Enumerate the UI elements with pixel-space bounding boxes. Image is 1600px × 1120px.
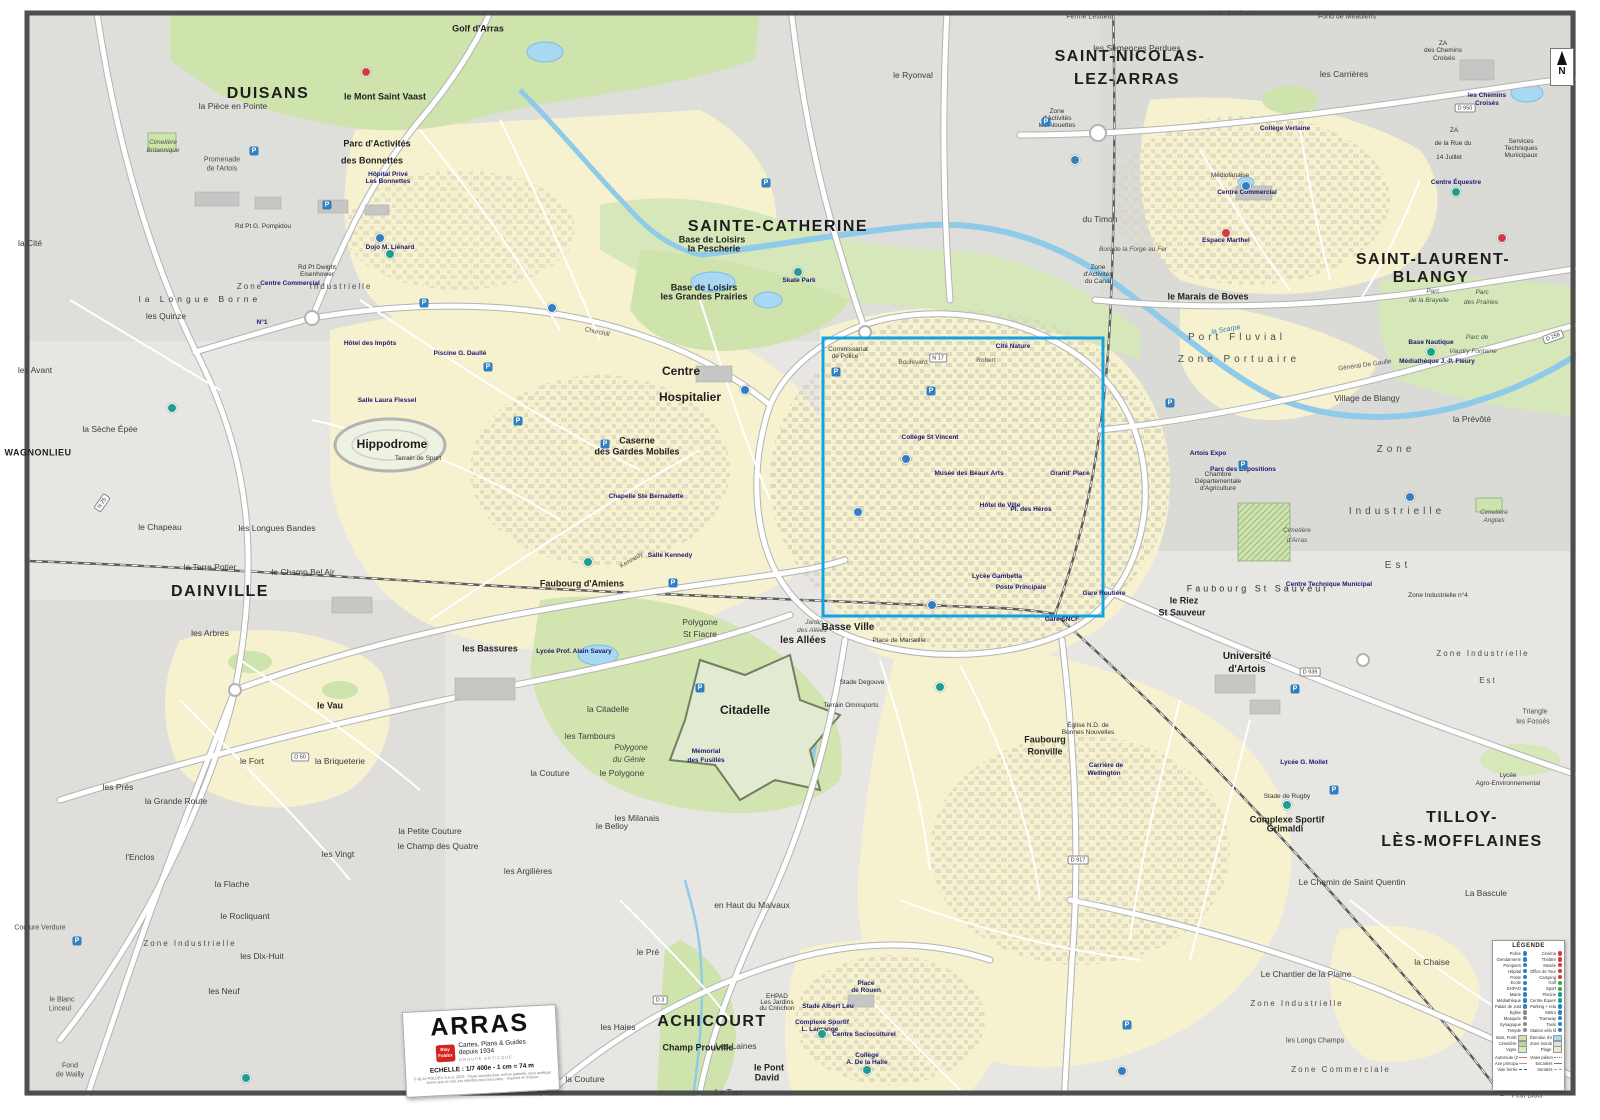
map-label: d'Artois xyxy=(1228,665,1265,675)
legend-line-label: Escaliers xyxy=(1530,1061,1553,1066)
map-label: Est xyxy=(1479,677,1497,685)
legend-item-label: Temple xyxy=(1495,1028,1521,1033)
poi-icon xyxy=(1221,228,1231,238)
legend-item-icon xyxy=(1523,1028,1528,1033)
map-label: les Carrières xyxy=(1320,70,1368,79)
map-label: Anglais xyxy=(1483,518,1504,525)
map-label: Cimetière xyxy=(1480,510,1508,517)
map-label: Faubourg xyxy=(1024,736,1066,745)
legend-area-swatch xyxy=(1518,1046,1527,1053)
poi-icon xyxy=(1117,1066,1127,1076)
map-label: les Milanais xyxy=(615,814,659,823)
map-label: Zone Industrielle xyxy=(1250,1000,1343,1008)
map-label: les Quinze xyxy=(146,312,186,321)
map-label: Croisés xyxy=(1433,56,1455,63)
legend-item-icon xyxy=(1523,998,1528,1003)
map-label: La Tour xyxy=(715,1088,743,1097)
publisher-logo-line2: Foldex xyxy=(436,1053,455,1060)
legend-item-icon xyxy=(1523,1010,1528,1015)
parking-icon: P xyxy=(832,368,841,377)
map-label: Couture Verdure xyxy=(14,925,65,932)
legend-item-label: Police xyxy=(1495,951,1521,956)
legend-item-label: Mosquée xyxy=(1495,1016,1521,1021)
map-label: les Longues Bandes xyxy=(238,524,315,533)
map-label: Lycée Prof. Alain Savary xyxy=(536,649,611,656)
map-label: des Chemins xyxy=(1424,48,1462,55)
legend-area-label: Cimetière xyxy=(1495,1041,1517,1046)
map-label: de Police xyxy=(832,354,859,361)
map-label: Parc xyxy=(1475,290,1488,297)
map-label: Médiolanaise xyxy=(1211,173,1249,180)
poi-icon xyxy=(901,454,911,464)
legend-item-label: Tramway xyxy=(1530,1016,1556,1021)
legend-item-label: Taxis xyxy=(1530,1022,1556,1027)
map-label: Carrière de xyxy=(1089,763,1123,770)
map-label: le Champ Bel Air xyxy=(271,568,334,577)
map-label: Est xyxy=(1385,561,1411,571)
map-label: Ronville xyxy=(1027,748,1062,757)
map-label: Lycée xyxy=(1499,773,1516,780)
map-label: Fond de Meaulens xyxy=(1318,14,1376,21)
map-label: le Pont xyxy=(754,1064,784,1073)
map-label: la Couture xyxy=(530,769,569,778)
map-label: la Petite Couture xyxy=(398,827,461,836)
map-label: Village de Blangy xyxy=(1334,394,1400,403)
legend-item-icon xyxy=(1558,963,1563,968)
map-label: Boulevard xyxy=(898,360,927,367)
legend-item-icon xyxy=(1523,1004,1528,1009)
map-label: Les Laines xyxy=(715,1042,756,1051)
map-label: le Mont Saint Vaast xyxy=(344,93,426,102)
legend-item-label: Pompiers xyxy=(1495,963,1521,968)
map-label: Zone Portuaire xyxy=(1178,355,1300,365)
parking-icon: P xyxy=(669,579,678,588)
legend-item-label: Église xyxy=(1495,1010,1521,1015)
map-label: les Tambours xyxy=(565,732,615,741)
map-label: Zone Industrielle xyxy=(143,940,236,948)
map-label: les Chemins xyxy=(1468,93,1506,100)
map-label: Faubourg d'Amiens xyxy=(540,580,624,589)
map-label: Parc d'Activités xyxy=(343,140,410,149)
map-label: les Dix-Huit xyxy=(240,952,283,961)
map-label: le Vau xyxy=(317,702,343,711)
publisher-logo: Blay Foldex xyxy=(435,1044,455,1062)
road-number-chip: D 60 xyxy=(291,752,309,761)
poi-icon xyxy=(862,1065,872,1075)
poi-icon xyxy=(1426,347,1436,357)
poi-icon xyxy=(1070,155,1080,165)
map-label: d'Agriculture xyxy=(1200,486,1236,493)
legend-item-label: Poste xyxy=(1495,975,1521,980)
north-arrow: N xyxy=(1550,48,1574,86)
map-label: les Fossés xyxy=(1516,719,1549,726)
map-label: des Gardes Mobiles xyxy=(594,448,679,457)
poi-icon xyxy=(817,1029,827,1039)
road-number-chip: N 17 xyxy=(929,353,947,362)
legend-item-label: Cinéma xyxy=(1530,951,1556,956)
poi-icon xyxy=(1451,187,1461,197)
legend-item-label: Office de Tourisme xyxy=(1530,969,1556,974)
map-label: Centre Commercial xyxy=(260,281,320,288)
legend-item-icon xyxy=(1523,1022,1528,1027)
legend-item-icon xyxy=(1523,1016,1528,1021)
poi-icon xyxy=(167,403,177,413)
map-label: Lycée G. Mollet xyxy=(1280,760,1327,767)
map-label: Port Fluvial xyxy=(1188,333,1286,343)
map-label: de la Rue du xyxy=(1435,141,1472,148)
map-label: Britannique xyxy=(147,148,180,155)
north-arrow-glyph xyxy=(1557,51,1567,65)
legend-box: LÉGENDE PoliceGendarmeriePompiersHôpital… xyxy=(1492,940,1565,1091)
parking-icon: P xyxy=(601,440,610,449)
map-label: en Haut du Malvaux xyxy=(714,901,790,910)
map-label: de Rouen xyxy=(851,988,881,995)
map-label: Grand' Place xyxy=(1050,471,1089,478)
map-label: Les Bonnettes xyxy=(366,179,411,186)
map-label: la Sèche Épée xyxy=(82,425,137,434)
title-block: ARRAS Blay Foldex Cartes, Plans & Guides… xyxy=(402,1004,560,1098)
road-number-chip: D 917 xyxy=(1068,855,1089,864)
map-label: DUISANS xyxy=(227,86,310,102)
legend-line-sample xyxy=(1519,1069,1527,1070)
map-label: Stade Degouve xyxy=(840,680,885,687)
poi-icon xyxy=(927,600,937,610)
map-label: l'Enclos xyxy=(125,853,154,862)
poi-icon xyxy=(385,249,395,259)
map-label: les Grandes Prairies xyxy=(660,293,747,302)
map-label: St Fiacre xyxy=(683,630,717,639)
map-label: la Pescherie xyxy=(688,245,741,254)
legend-item-label: Piscine xyxy=(1530,992,1556,997)
map-label: Bois de la Forge au Fer xyxy=(1099,247,1167,254)
map-label: Parc de xyxy=(1466,335,1488,342)
legend-item-label: Synagogue xyxy=(1495,1022,1521,1027)
map-label: d'Arras xyxy=(1287,538,1307,545)
parking-icon: P xyxy=(1239,461,1248,470)
legend-item-label: Parking + relais xyxy=(1530,1004,1556,1009)
map-label: SAINTE-CATHERINE xyxy=(688,219,868,235)
legend-item-icon xyxy=(1558,957,1563,962)
legend-item-label: École xyxy=(1495,980,1521,985)
legend-item-icon xyxy=(1558,1022,1563,1027)
legend-item-label: Centre Équestre xyxy=(1530,998,1556,1003)
map-label: les Arbres xyxy=(191,629,229,638)
map-label: la Citadelle xyxy=(587,705,629,714)
legend-item-icon xyxy=(1558,998,1563,1003)
road-number-chip: D 3 xyxy=(653,995,668,1004)
map-label: SAINT-LAURENT- xyxy=(1356,252,1510,268)
map-label: Polygone xyxy=(682,618,717,627)
map-label: St Sauveur xyxy=(1158,609,1205,618)
map-label: Piscine G. Daullé xyxy=(434,351,487,358)
parking-icon: P xyxy=(1042,118,1051,127)
map-label: les Allées xyxy=(780,636,826,646)
map-label: Pl. des Héros xyxy=(1010,507,1051,514)
map-label: TILLOY- xyxy=(1426,810,1498,826)
map-label: Gare SNCF xyxy=(1045,617,1079,624)
map-label: Ferme Lesueur xyxy=(1066,14,1113,21)
map-label: Zone Industrielle xyxy=(1436,650,1529,658)
map-label: BLANGY xyxy=(1393,270,1470,286)
map-label: Petit Blois xyxy=(1511,1093,1542,1100)
parking-icon: P xyxy=(1291,685,1300,694)
map-label: Terrain Omnisports xyxy=(824,703,879,710)
legend-item-icon xyxy=(1558,1016,1563,1021)
poi-icon xyxy=(583,557,593,567)
legend-item-icon xyxy=(1523,951,1528,956)
map-label: le Chapeau xyxy=(138,523,181,532)
map-label: Artois Expo xyxy=(1190,451,1226,458)
legend-line-label: Voies piétonnes xyxy=(1530,1055,1553,1060)
parking-icon: P xyxy=(250,147,259,156)
map-label: Lycée Gambetta xyxy=(972,574,1022,581)
map-label: Chapelle Ste Bernadette xyxy=(609,494,684,501)
map-label: la Pièce en Pointe xyxy=(199,102,268,111)
map-label: la Terre Potier xyxy=(184,563,237,572)
legend-area-label: Plage xyxy=(1530,1047,1552,1052)
map-label: Municipaux xyxy=(1505,153,1538,160)
map-label: Industrielle xyxy=(1349,507,1445,517)
map-label: de l'Artois xyxy=(207,166,238,173)
legend-item-icon xyxy=(1523,992,1528,997)
map-label: Espace Marthel xyxy=(1202,238,1250,245)
legend-area-label: Vigne xyxy=(1495,1047,1517,1052)
map-label: Salle Kennedy xyxy=(648,553,692,560)
legend-item-icon xyxy=(1523,957,1528,962)
map-label: Hippodrome xyxy=(357,438,428,450)
legend-line-sample xyxy=(1554,1057,1562,1058)
map-label: Linceul xyxy=(49,1006,71,1013)
map-label: ZA xyxy=(1450,128,1458,135)
map-label: Médiathèque J.-P. Fleury xyxy=(1399,359,1475,366)
legend-item-label: Hôpital xyxy=(1495,969,1521,974)
map-sheet: DUISANSSAINTE-CATHERINESAINT-NICOLAS-LEZ… xyxy=(0,0,1600,1120)
map-label: Hôtel des Impôts xyxy=(344,341,396,348)
legend-item-label: Musée xyxy=(1530,963,1556,968)
map-label: du Timon xyxy=(1083,215,1118,224)
map-label: Cimetière xyxy=(149,140,177,147)
legend-area-label: Zone inondable xyxy=(1530,1041,1552,1046)
map-label: Golf d'Arras xyxy=(452,25,504,34)
map-label: Rd Pt G. Pompidou xyxy=(235,224,291,231)
legend-item-icon xyxy=(1558,1004,1563,1009)
map-label: du Canal xyxy=(1085,279,1111,286)
map-label: LÈS-MOFFLAINES xyxy=(1381,834,1542,850)
legend-item-icon xyxy=(1523,987,1528,992)
map-label: DAINVILLE xyxy=(171,584,269,600)
poi-icon xyxy=(241,1073,251,1083)
map-label: Eisenhower xyxy=(300,272,334,279)
parking-icon: P xyxy=(514,417,523,426)
legend-line-label: Autoroute (2x2 voies) xyxy=(1495,1055,1518,1060)
legend-item-icon xyxy=(1558,1028,1563,1033)
legend-item-label: Sport xyxy=(1530,986,1556,991)
poi-icon xyxy=(793,267,803,277)
map-label: David xyxy=(755,1074,780,1083)
map-label: Le Chantier de la Plaine xyxy=(1261,970,1352,979)
map-label: les Avant xyxy=(18,366,52,375)
map-label: les Neuf xyxy=(208,987,239,996)
map-label: Jardin xyxy=(805,620,823,627)
map-label: Université xyxy=(1223,652,1271,662)
legend-line-label: Sentiers xyxy=(1530,1067,1553,1072)
map-label: Centre Technique Municipal xyxy=(1286,582,1372,589)
poi-icon xyxy=(740,385,750,395)
map-label: 14 Juillet xyxy=(1436,155,1462,162)
legend-item-icon xyxy=(1523,981,1528,986)
map-label: du Génie xyxy=(613,756,645,764)
poi-icon xyxy=(361,67,371,77)
map-label: Zone xyxy=(237,283,263,291)
parking-icon: P xyxy=(323,201,332,210)
poi-icon xyxy=(935,682,945,692)
map-label: Fond xyxy=(62,1063,78,1070)
map-label: Vaudry Fontaine xyxy=(1449,349,1496,356)
map-label: Parc xyxy=(1426,289,1439,296)
legend-area-swatch xyxy=(1553,1046,1562,1053)
map-label: Collège St Vincent xyxy=(902,435,959,442)
map-label: le Champ des Quatre xyxy=(398,842,479,851)
parking-icon: P xyxy=(1166,399,1175,408)
legend-item-label: Gendarmerie xyxy=(1495,957,1521,962)
legend-area-label: Bois, Forêt xyxy=(1495,1035,1517,1040)
legend-item-icon xyxy=(1558,987,1563,992)
legend-item-label: Palais de Justice xyxy=(1495,1004,1521,1009)
parking-icon: P xyxy=(484,363,493,372)
legend-item-icon xyxy=(1558,975,1563,980)
parking-icon: P xyxy=(927,387,936,396)
north-label: N xyxy=(1551,65,1573,78)
parking-icon: P xyxy=(1330,786,1339,795)
parking-icon: P xyxy=(73,937,82,946)
map-label: Grimaldi xyxy=(1267,825,1304,834)
legend-item-icon xyxy=(1558,969,1563,974)
poi-icon xyxy=(1241,181,1251,191)
map-label: les Argilières xyxy=(504,867,552,876)
map-label: de la Brayelle xyxy=(1409,298,1448,305)
legend-item-label: Médiathèque xyxy=(1495,998,1521,1003)
map-label: Centre Socioculturel xyxy=(832,1032,896,1039)
map-label: la Flache xyxy=(215,880,250,889)
map-label: Musée des Beaux Arts xyxy=(934,471,1003,478)
poi-icon xyxy=(853,507,863,517)
parking-icon: P xyxy=(762,179,771,188)
map-label: de Wailly xyxy=(56,1072,84,1079)
map-label: les Semences Perdues xyxy=(1093,44,1180,53)
map-label: des Bonnettes xyxy=(341,157,403,166)
map-label: le Fort xyxy=(240,757,264,766)
map-label: la Cité xyxy=(18,239,42,248)
map-label: Basse Ville xyxy=(822,623,875,633)
parking-icon: P xyxy=(420,299,429,308)
poi-icon xyxy=(1282,800,1292,810)
legend-line-label: Axe principal xyxy=(1495,1061,1518,1066)
road-number-chip: D 939 xyxy=(1300,667,1321,676)
map-label: la Chaise xyxy=(1414,958,1449,967)
map-label: LEZ-ARRAS xyxy=(1074,72,1180,88)
map-label: Stade Albert Leu xyxy=(802,1004,853,1011)
map-label: Wellington xyxy=(1087,771,1120,778)
legend-item-icon xyxy=(1558,951,1563,956)
legend-area-label: Étendue d'eau xyxy=(1530,1035,1552,1040)
legend-item-label: Métro xyxy=(1530,1010,1556,1015)
poi-icon xyxy=(1405,492,1415,502)
legend-line-sample xyxy=(1554,1069,1562,1070)
map-label: Promenade xyxy=(204,157,240,164)
map-label: Zone xyxy=(1377,445,1416,455)
map-label: Caserne xyxy=(619,437,655,446)
map-label: Salle Laura Flessel xyxy=(358,398,417,405)
map-label: Triangle xyxy=(1522,709,1547,716)
legend-item-label: Mairie xyxy=(1495,992,1521,997)
map-label: Cité Nature xyxy=(996,344,1031,351)
map-label: Robert xyxy=(976,358,996,365)
map-label: la Grande Route xyxy=(145,797,207,806)
map-label: des Prairies xyxy=(1464,300,1498,307)
map-label: les Bassures xyxy=(462,645,518,654)
map-label: la Prévôté xyxy=(1453,415,1491,424)
map-label: Skate Park xyxy=(782,278,815,285)
legend-line-sample xyxy=(1519,1057,1527,1058)
map-label: Collège Verlaine xyxy=(1260,126,1310,133)
map-label: Base Nautique xyxy=(1408,340,1453,347)
map-label: Terrain de Sport xyxy=(395,456,441,463)
map-label: les Longs Champs xyxy=(1286,1038,1344,1045)
legend-item-label: Station vélo libre service xyxy=(1530,1028,1556,1033)
legend-item-icon xyxy=(1523,975,1528,980)
map-label: le Pré xyxy=(637,948,659,957)
map-label: la Longue Borne xyxy=(139,295,261,304)
legend-item-label: EHPAD xyxy=(1495,986,1521,991)
legend-item-icon xyxy=(1558,1010,1563,1015)
map-label: Centre Équestre xyxy=(1431,180,1481,187)
map-label: du Crinchon xyxy=(759,1006,794,1013)
map-label: Gare Routière xyxy=(1083,591,1126,598)
legend-item-label: Golf xyxy=(1530,980,1556,985)
parking-icon: P xyxy=(1123,1021,1132,1030)
map-label: Hospitalier xyxy=(659,391,721,403)
poi-icon xyxy=(1497,233,1507,243)
poi-icon xyxy=(547,303,557,313)
map-label: Mémorial xyxy=(692,749,721,756)
map-label: Polygone xyxy=(614,744,647,752)
map-label: le Blanc xyxy=(50,997,75,1004)
legend-title: LÉGENDE xyxy=(1495,943,1562,949)
map-label: la Briqueterie xyxy=(315,757,365,766)
map-label: Bonnes Nouvelles xyxy=(1062,730,1114,737)
map-label: Cimetière xyxy=(1283,528,1311,535)
legend-line-label: Voie ferrée xyxy=(1495,1067,1518,1072)
map-label: des Allées xyxy=(797,628,827,635)
map-label: Le Chemin de Saint Quentin xyxy=(1299,878,1406,887)
legend-line-sample xyxy=(1554,1063,1562,1064)
road-number-chip: D 950 xyxy=(1455,103,1476,112)
legend-item-label: Camping xyxy=(1530,975,1556,980)
map-label: la Couture xyxy=(565,1075,604,1084)
map-label: le Belloy xyxy=(596,822,628,831)
legend-item-icon xyxy=(1523,963,1528,968)
map-label: Centre xyxy=(662,365,700,377)
map-label: Zone Industrielle n°4 xyxy=(1408,593,1468,600)
map-label: WAGNONLIEU xyxy=(5,449,72,458)
map-label: le Riez xyxy=(1170,597,1199,606)
map-label: Voie du Timon xyxy=(1211,11,1255,18)
map-label: La Bascule xyxy=(1465,889,1507,898)
map-label: Citadelle xyxy=(720,704,770,716)
legend-line-sample xyxy=(1519,1063,1527,1064)
parking-icon: P xyxy=(696,684,705,693)
legend-item-icon xyxy=(1523,969,1528,974)
